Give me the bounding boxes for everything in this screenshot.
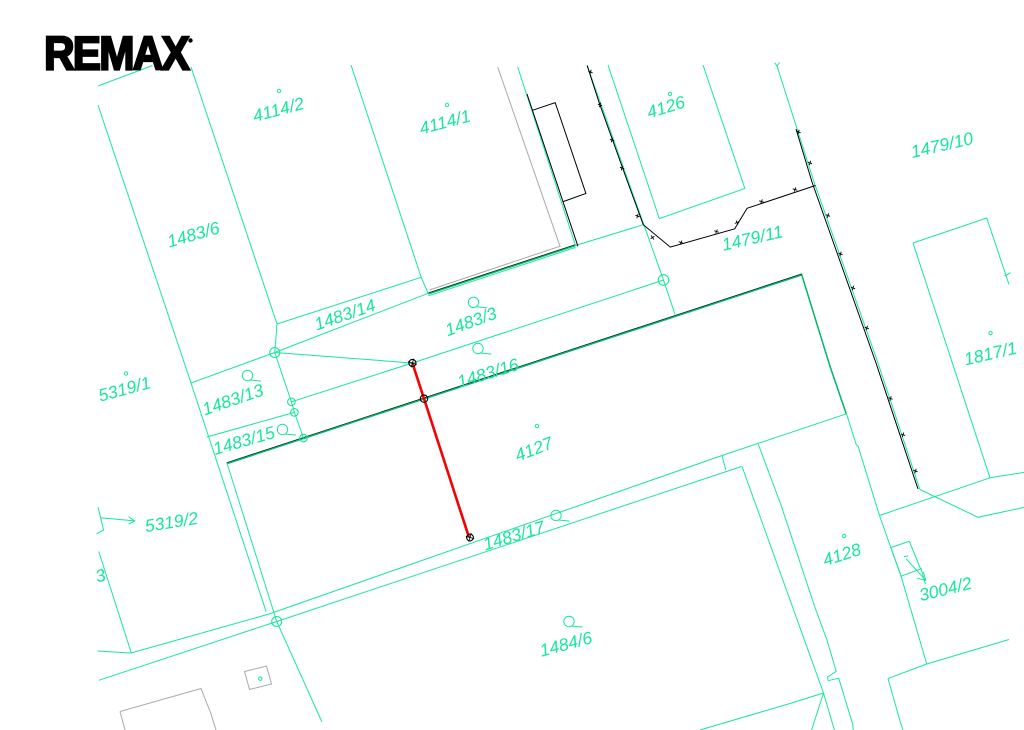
svg-text:REMAX: REMAX	[44, 27, 189, 80]
